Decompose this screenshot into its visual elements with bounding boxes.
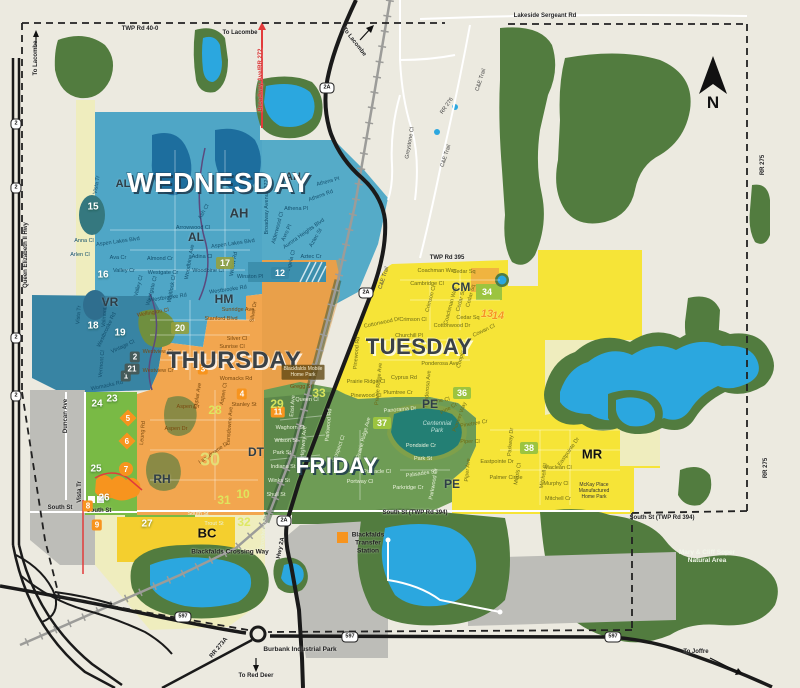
white-square-b xyxy=(97,496,104,503)
white-square-a xyxy=(88,496,95,503)
roundabout xyxy=(251,627,265,641)
rh-pond-b xyxy=(146,452,181,490)
map-canvas xyxy=(0,0,800,688)
road-dot-b xyxy=(498,610,503,615)
north-arrow-icon xyxy=(699,56,727,94)
tree-patch-w1 xyxy=(79,195,105,235)
road-dot-a xyxy=(386,538,391,543)
transfer-station-icon xyxy=(337,532,348,543)
tree-patch-w2 xyxy=(83,290,107,320)
cm-green-block xyxy=(476,284,502,300)
collection-schedule-map: Vista TrAnna ClAspen Lakes BlvdArlen ClA… xyxy=(0,0,800,688)
